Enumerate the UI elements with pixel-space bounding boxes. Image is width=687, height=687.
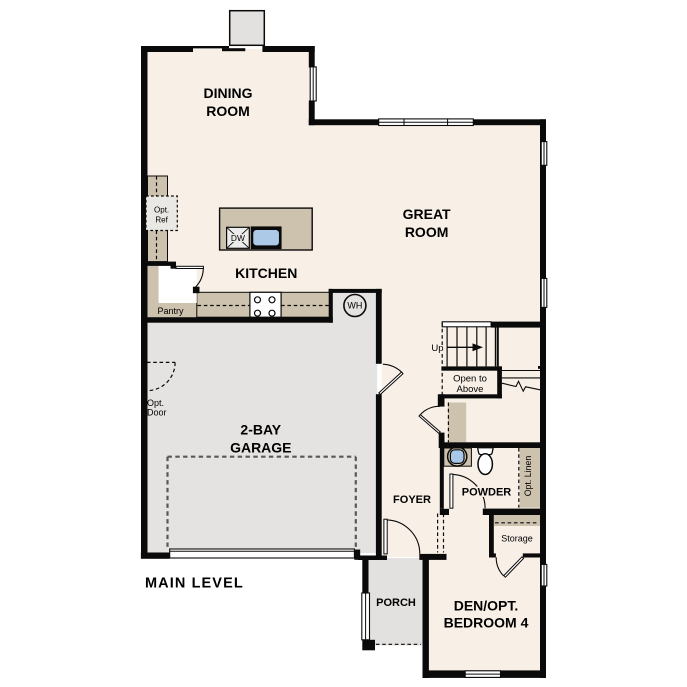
svg-text:BEDROOM 4: BEDROOM 4 (444, 615, 529, 631)
svg-text:MAIN LEVEL: MAIN LEVEL (145, 575, 244, 591)
svg-text:Opt. Linen: Opt. Linen (523, 456, 533, 497)
svg-text:POWDER: POWDER (462, 486, 512, 498)
svg-text:GREAT: GREAT (403, 206, 451, 222)
svg-text:Open to: Open to (453, 374, 487, 385)
svg-text:Storage: Storage (501, 534, 533, 544)
svg-text:DEN/OPT.: DEN/OPT. (454, 597, 519, 613)
svg-text:GARAGE: GARAGE (230, 440, 291, 456)
svg-text:ROOM: ROOM (206, 103, 250, 119)
svg-text:Ref: Ref (155, 216, 168, 225)
svg-text:DINING: DINING (204, 85, 253, 101)
svg-text:2-BAY: 2-BAY (240, 422, 281, 438)
svg-text:WH: WH (347, 300, 362, 310)
svg-text:Up: Up (431, 343, 443, 354)
svg-text:FOYER: FOYER (393, 494, 431, 506)
svg-text:ROOM: ROOM (405, 224, 449, 240)
svg-text:Opt.: Opt. (154, 206, 169, 215)
svg-text:Pantry: Pantry (157, 306, 184, 316)
svg-text:KITCHEN: KITCHEN (235, 265, 297, 281)
svg-text:PORCH: PORCH (376, 597, 416, 609)
svg-text:Above: Above (457, 384, 484, 395)
svg-text:Door: Door (147, 407, 167, 417)
svg-text:DW: DW (231, 233, 245, 243)
